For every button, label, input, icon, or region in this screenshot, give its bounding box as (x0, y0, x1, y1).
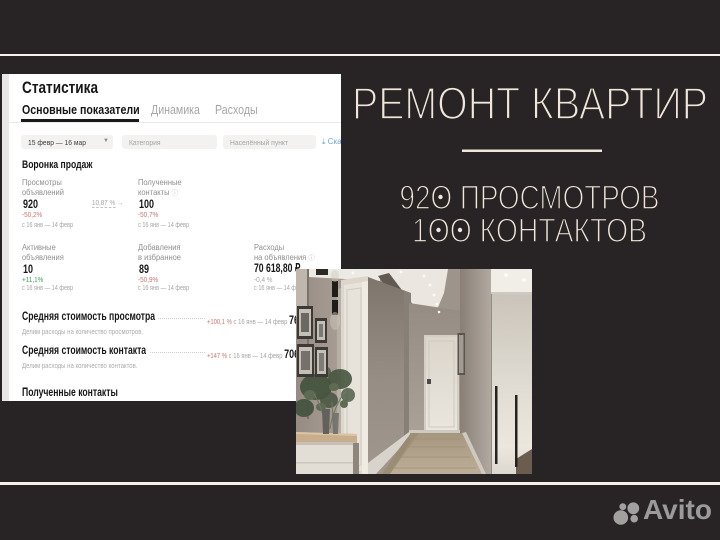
svg-text:1ОО КОНТАКТОВ: 1ОО КОНТАКТОВ (412, 212, 647, 250)
svg-text:РЕМОНТ КВАРТИР: РЕМОНТ КВАРТИР (352, 80, 708, 129)
